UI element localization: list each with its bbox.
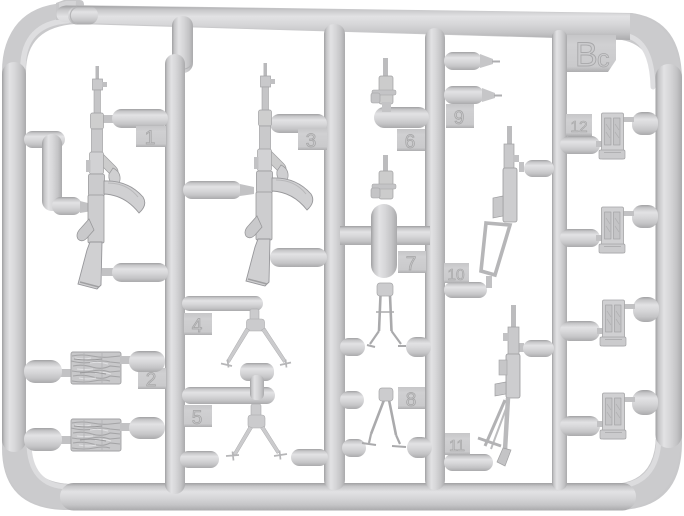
svg-text:6: 6 (405, 132, 416, 153)
svg-text:7: 7 (406, 254, 417, 275)
svg-text:1: 1 (145, 128, 156, 149)
svg-text:8: 8 (406, 390, 417, 411)
svg-text:4: 4 (192, 316, 203, 337)
svg-text:c: c (597, 45, 610, 73)
svg-text:5: 5 (192, 408, 203, 429)
svg-text:2: 2 (146, 370, 157, 391)
svg-text:12: 12 (570, 119, 587, 136)
svg-text:3: 3 (306, 131, 317, 152)
svg-text:B: B (575, 36, 598, 74)
svg-text:10: 10 (447, 267, 465, 284)
svg-text:11: 11 (449, 438, 465, 455)
svg-text:9: 9 (454, 108, 465, 129)
